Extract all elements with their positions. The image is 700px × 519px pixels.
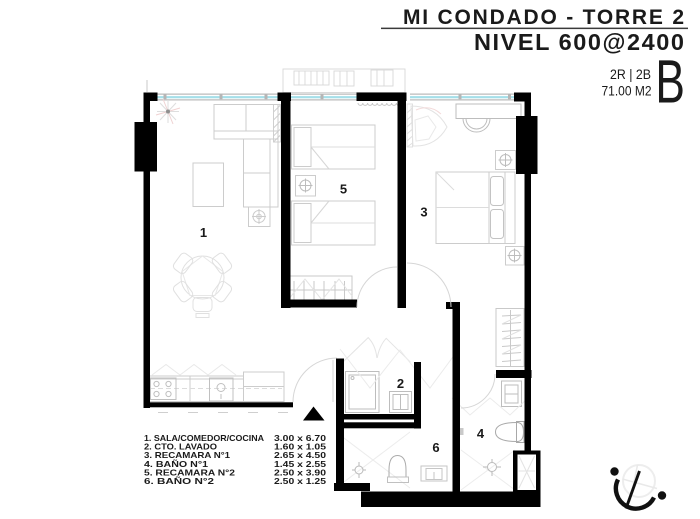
svg-text:5: 5 [340, 182, 347, 197]
svg-text:6. BAÑO N°2: 6. BAÑO N°2 [144, 476, 215, 486]
svg-text:MI CONDADO - TORRE 2: MI CONDADO - TORRE 2 [403, 6, 684, 29]
svg-text:2: 2 [397, 376, 404, 391]
svg-text:2.50 x 1.25: 2.50 x 1.25 [274, 476, 326, 486]
svg-text:2R | 2B: 2R | 2B [610, 66, 651, 82]
svg-text:71.00 M2: 71.00 M2 [602, 83, 652, 99]
svg-text:1: 1 [200, 225, 207, 240]
svg-text:6: 6 [432, 440, 439, 455]
svg-text:B: B [655, 49, 685, 117]
svg-text:3: 3 [420, 205, 427, 220]
svg-text:NIVEL 600@2400: NIVEL 600@2400 [474, 29, 684, 55]
svg-text:4: 4 [477, 426, 485, 441]
